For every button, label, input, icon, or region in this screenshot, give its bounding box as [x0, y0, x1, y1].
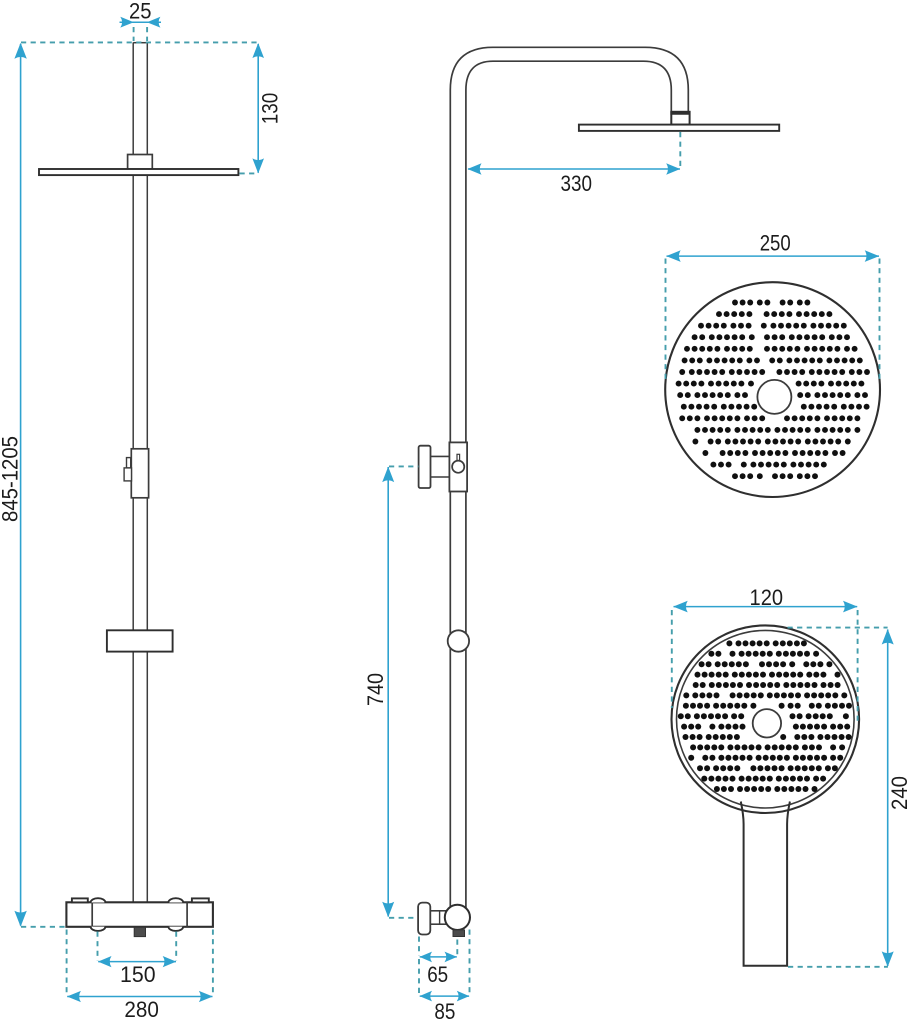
svg-text:845-1205: 845-1205: [0, 436, 22, 522]
svg-text:240: 240: [887, 776, 907, 810]
svg-text:85: 85: [434, 999, 455, 1020]
svg-text:740: 740: [363, 673, 388, 706]
svg-text:120: 120: [750, 585, 784, 610]
svg-text:330: 330: [561, 171, 593, 196]
svg-text:150: 150: [120, 962, 156, 987]
svg-text:130: 130: [258, 93, 283, 125]
svg-text:280: 280: [124, 997, 159, 1020]
svg-text:65: 65: [427, 962, 448, 987]
svg-text:250: 250: [760, 231, 791, 256]
svg-text:25: 25: [129, 0, 152, 23]
